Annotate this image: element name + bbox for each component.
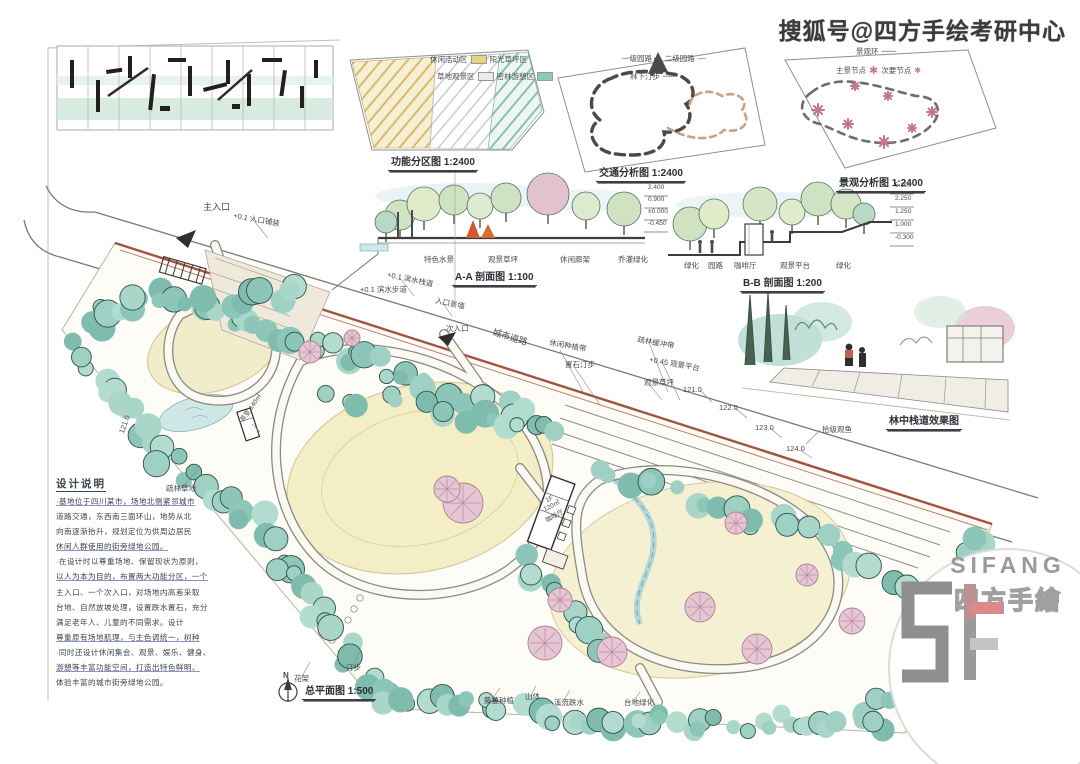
text-label: 1.000 <box>895 222 911 229</box>
dashed-line-icon: ╌╌╌ <box>663 72 677 81</box>
text-label: 观景草坪 <box>644 379 674 387</box>
legend-swatch <box>537 72 553 81</box>
text-label: 主入口 <box>203 203 230 212</box>
traffic-legend-row-2: 林下汀步╌╌╌ <box>630 71 677 82</box>
zoning-diagram <box>350 50 544 150</box>
title-lettering-art <box>57 46 333 130</box>
caption: A-A 剖面图 1:100 <box>452 268 537 286</box>
text-label: 特色水景 <box>424 256 454 264</box>
caption: B-B 剖面图 1:200 <box>740 274 825 292</box>
traffic-diagram <box>558 48 765 172</box>
legend-label: 草地观景区 <box>437 71 475 82</box>
minor-node-icon: ✱ <box>914 66 921 75</box>
legend-label: 一级园路 <box>622 53 652 64</box>
text-label: 124.0 <box>786 445 805 453</box>
text-label: 咖啡厅 <box>734 262 757 270</box>
zoning-legend-row-1: 休闲活动区阳光草坪区 <box>430 54 527 65</box>
design-note-line: 台地、自然放坡处理，设置跌水置石，充分 <box>56 604 228 612</box>
design-note-line: ·基地位于四川某市，场地北侧紧邻城市 <box>56 498 228 506</box>
design-note-line: ·同时还设计休闲集会、观景、娱乐、健身、 <box>56 649 228 657</box>
zoning-legend-row-2: 草地观景区密林游憩区 <box>437 71 553 82</box>
text-label: 2.400 <box>648 185 664 192</box>
legend-label: 阳光草坪区 <box>490 54 528 65</box>
text-label: 绿化 <box>684 262 699 270</box>
design-note-line: 游憩等丰富功能空间，打造出特色鲜明、 <box>56 664 228 672</box>
caption: 总平面图 1:500 <box>302 682 376 700</box>
sifang-monogram-icon <box>890 576 1010 688</box>
text-label: 观景平台 <box>780 262 810 270</box>
design-note-line: ·在设计时以尊重场地、保留现状为原则， <box>56 558 228 566</box>
design-note-line: 向南逐渐抬升，规划定位为供周边居民 <box>56 528 228 536</box>
landscape-node-stars <box>812 82 937 148</box>
text-label: 藤蔓种植 <box>484 697 514 705</box>
drawing-sheet: 搜狐号@四方手绘考研中心 休闲活动区阳光草坪区 草地观景区密林游憩区 一级园路➡… <box>0 0 1080 764</box>
text-label: 0.900 <box>648 197 664 204</box>
design-notes: 设计说明 ·基地位于四川某市，场地北侧紧邻城市道路交通，东西南三面环山，地势从北… <box>56 474 228 694</box>
solid-line-icon: — <box>698 54 706 63</box>
design-note-line: 主入口、一个次入口，对场地内高差采取 <box>56 589 228 597</box>
landscape-legend-row-2: 主景节点✱次要节点✱ <box>836 64 921 77</box>
text-label: 乔灌绿化 <box>618 256 648 264</box>
caption: 功能分区图 1:2400 <box>388 153 478 171</box>
text-label: 花架 <box>294 675 309 683</box>
legend-label: 密林游憩区 <box>497 71 535 82</box>
design-notes-title: 设计说明 <box>56 476 106 492</box>
dashed-line-icon: ╌╌╌ <box>882 47 896 56</box>
text-label: 121.0 <box>683 386 702 394</box>
design-note-line: 体验丰富的城市街旁绿地公园。 <box>56 679 228 687</box>
section-bb <box>668 182 892 255</box>
text-label: 观景草坪 <box>488 256 518 264</box>
text-label: 2.250 <box>895 196 911 203</box>
legend-label: 二级园路 <box>665 53 695 64</box>
text-label: 122.0 <box>719 404 738 412</box>
text-label: 1.250 <box>895 209 911 216</box>
text-label: 园路 <box>708 262 723 270</box>
text-label: 台地绿化 <box>624 699 654 707</box>
caption: 林中栈道效果图 <box>886 412 962 430</box>
legend-label: 次要节点 <box>881 65 911 76</box>
perspective-sketch <box>738 292 1015 420</box>
text-label: 5.100 <box>895 183 911 190</box>
design-note-line: 休闲人群使用的街旁绿地公园。 <box>56 543 228 551</box>
traffic-legend-row-1: 一级园路➡二级园路— <box>622 53 706 64</box>
caption: 景观分析图 1:2400 <box>836 174 926 192</box>
watermark: 搜狐号@四方手绘考研中心 <box>779 12 1066 46</box>
major-node-icon: ✱ <box>869 64 878 77</box>
north-label: N <box>283 672 289 680</box>
design-note-line: 道路交通，东西南三面环山，地势从北 <box>56 513 228 521</box>
sifang-logo: SIFANG 四方手繪 <box>888 548 1080 764</box>
landscape-legend-row-1: 景观环╌╌╌ <box>856 46 896 57</box>
legend-swatch <box>471 55 487 64</box>
design-note-line: 满足老年人、儿童的不同需求。设计 <box>56 619 228 627</box>
design-note-line: 尊重原有场地肌理，与主色调统一，树种 <box>56 634 228 642</box>
legend-label: 主景节点 <box>836 65 866 76</box>
arrow-icon: ➡ <box>655 54 662 63</box>
text-label: 休闲廊架 <box>560 256 590 264</box>
text-label: 绿化 <box>836 262 851 270</box>
design-note-line: 以人为本为目的，布置两大功能分区，一个 <box>56 573 228 581</box>
caption: 交通分析图 1:2400 <box>596 164 686 182</box>
text-label: 置石汀步 <box>565 361 595 369</box>
legend-label: 景观环 <box>856 46 879 57</box>
text-label: 123.0 <box>755 424 774 432</box>
text-label: 山体 <box>525 693 540 701</box>
legend-label: 休闲活动区 <box>430 54 468 65</box>
text-label: 汀步 <box>346 664 361 672</box>
legend-swatch <box>478 72 494 81</box>
text-label: ±0.000 <box>648 209 668 216</box>
logo-name: SIFANG <box>950 552 1066 579</box>
text-label: +0.1 滨水步道 <box>360 286 407 294</box>
text-label: 拾级观鱼 <box>822 426 852 434</box>
text-label: -0.300 <box>895 235 913 242</box>
text-label: 溪流跌水 <box>554 699 584 707</box>
text-label: 次入口 <box>446 325 469 333</box>
text-label: -0.450 <box>648 221 666 228</box>
legend-label: 林下汀步 <box>630 71 660 82</box>
